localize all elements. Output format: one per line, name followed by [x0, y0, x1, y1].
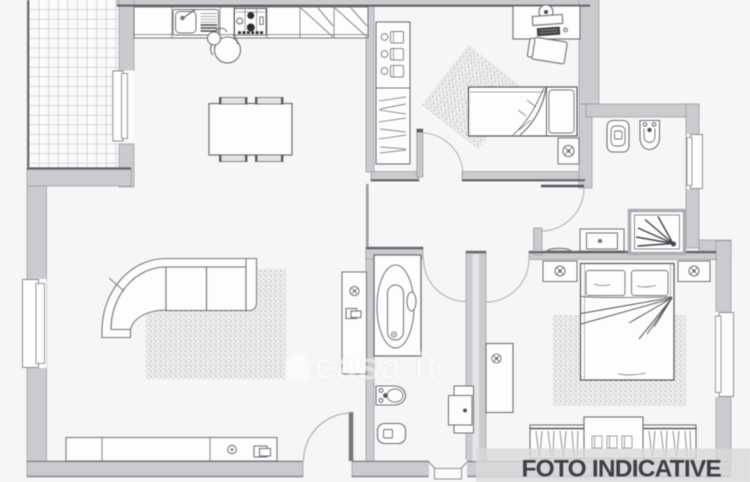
svg-text:casa.it: casa.it	[314, 346, 439, 388]
svg-text:FOTO INDICATIVE: FOTO INDICATIVE	[522, 456, 722, 482]
